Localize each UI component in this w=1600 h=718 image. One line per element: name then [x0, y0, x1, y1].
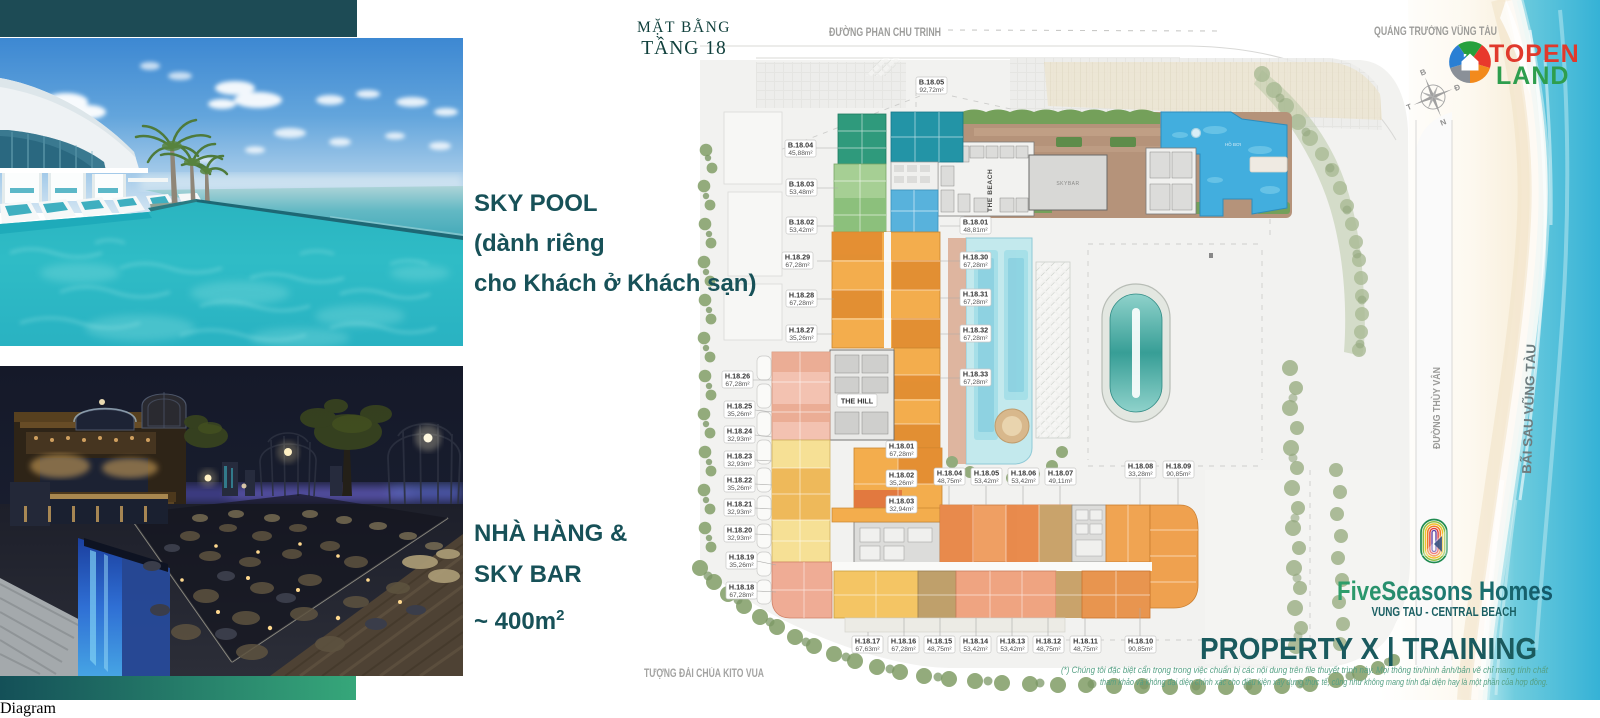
- svg-text:48,75m²: 48,75m²: [1073, 646, 1098, 653]
- svg-text:48,75m²: 48,75m²: [927, 646, 952, 653]
- svg-text:67,28m²: 67,28m²: [963, 299, 988, 306]
- svg-text:H.18.30: H.18.30: [963, 253, 988, 262]
- svg-text:B.18.03: B.18.03: [789, 180, 814, 189]
- svg-text:90,85m²: 90,85m²: [1166, 471, 1191, 478]
- svg-text:SKYBAR: SKYBAR: [1056, 181, 1079, 187]
- svg-text:53,48m²: 53,48m²: [789, 189, 814, 196]
- svg-text:67,63m²: 67,63m²: [855, 646, 880, 653]
- svg-text:45,88m²: 45,88m²: [788, 150, 813, 157]
- svg-text:H.18.19: H.18.19: [729, 553, 754, 562]
- svg-text:48,75m²: 48,75m²: [1036, 646, 1061, 653]
- svg-text:tham khảo và không đại diện ch: tham khảo và không đại diện chính xác ch…: [1100, 677, 1548, 687]
- svg-text:67,28m²: 67,28m²: [963, 379, 988, 386]
- svg-text:H.18.32: H.18.32: [963, 326, 988, 335]
- svg-text:H.18.17: H.18.17: [855, 637, 880, 646]
- svg-text:48,75m²: 48,75m²: [937, 478, 962, 485]
- svg-text:H.18.04: H.18.04: [937, 469, 962, 478]
- svg-text:QUẢNG TRƯỜNG VŨNG TÀU: QUẢNG TRƯỜNG VŨNG TÀU: [1374, 25, 1497, 38]
- svg-text:48,81m²: 48,81m²: [963, 227, 988, 234]
- svg-text:H.18.02: H.18.02: [889, 471, 914, 480]
- svg-text:H.18.28: H.18.28: [789, 291, 814, 300]
- svg-text:H.18.12: H.18.12: [1036, 637, 1061, 646]
- svg-text:LAND: LAND: [1496, 62, 1569, 90]
- svg-text:H.18.18: H.18.18: [729, 583, 754, 592]
- svg-text:H.18.11: H.18.11: [1073, 637, 1098, 646]
- svg-text:35,26m²: 35,26m²: [727, 411, 752, 418]
- svg-text:PROPERTY X | TRAINING: PROPERTY X | TRAINING: [1200, 631, 1537, 666]
- svg-text:H.18.25: H.18.25: [727, 402, 752, 411]
- svg-text:67,28m²: 67,28m²: [891, 646, 916, 653]
- svg-text:53,42m²: 53,42m²: [974, 478, 999, 485]
- svg-text:92,72m²: 92,72m²: [919, 87, 944, 94]
- svg-text:35,26m²: 35,26m²: [729, 562, 754, 569]
- svg-text:B.18.02: B.18.02: [789, 218, 814, 227]
- svg-text:H.18.05: H.18.05: [974, 469, 999, 478]
- svg-text:H.18.09: H.18.09: [1166, 462, 1191, 471]
- svg-text:90,85m²: 90,85m²: [1128, 646, 1153, 653]
- svg-text:H.18.03: H.18.03: [889, 497, 914, 506]
- svg-text:H.18.06: H.18.06: [1011, 469, 1036, 478]
- svg-text:67,28m²: 67,28m²: [963, 262, 988, 269]
- svg-text:ĐƯỜNG PHAN CHU TRINH: ĐƯỜNG PHAN CHU TRINH: [829, 24, 941, 39]
- svg-text:H.18.26: H.18.26: [725, 372, 750, 381]
- svg-text:B.18.01: B.18.01: [963, 218, 988, 227]
- svg-text:H.18.33: H.18.33: [963, 370, 988, 379]
- svg-text:ĐƯỜNG THÙY VÂN: ĐƯỜNG THÙY VÂN: [1430, 367, 1443, 449]
- svg-text:H.18.23: H.18.23: [727, 452, 752, 461]
- svg-text:53,42m²: 53,42m²: [963, 646, 988, 653]
- svg-text:H.18.13: H.18.13: [1000, 637, 1025, 646]
- svg-text:(*) Chúng tôi đặc biệt cẩn trọ: (*) Chúng tôi đặc biệt cẩn trọng trong v…: [1061, 665, 1548, 675]
- svg-text:THE BEACH: THE BEACH: [987, 169, 994, 212]
- svg-text:67,28m²: 67,28m²: [889, 451, 914, 458]
- svg-text:THE HILL: THE HILL: [841, 397, 874, 406]
- svg-text:H.18.31: H.18.31: [963, 290, 988, 299]
- svg-text:53,42m²: 53,42m²: [1011, 478, 1036, 485]
- svg-text:67,28m²: 67,28m²: [789, 300, 814, 307]
- svg-text:B.18.05: B.18.05: [919, 78, 944, 87]
- svg-text:H.18.16: H.18.16: [891, 637, 916, 646]
- svg-text:53,42m²: 53,42m²: [789, 227, 814, 234]
- svg-text:32,93m²: 32,93m²: [727, 509, 752, 516]
- svg-text:32,93m²: 32,93m²: [727, 461, 752, 468]
- svg-text:B.18.04: B.18.04: [788, 141, 813, 150]
- svg-text:67,28m²: 67,28m²: [785, 262, 810, 269]
- svg-text:67,28m²: 67,28m²: [963, 335, 988, 342]
- svg-text:H.18.24: H.18.24: [727, 427, 752, 436]
- svg-text:32,94m²: 32,94m²: [889, 506, 914, 513]
- svg-text:32,93m²: 32,93m²: [727, 436, 752, 443]
- svg-text:35,26m²: 35,26m²: [727, 485, 752, 492]
- svg-text:35,26m²: 35,26m²: [889, 480, 914, 487]
- svg-text:32,93m²: 32,93m²: [727, 535, 752, 542]
- svg-text:H.18.27: H.18.27: [789, 326, 814, 335]
- svg-text:49,11m²: 49,11m²: [1049, 478, 1074, 485]
- svg-text:67,28m²: 67,28m²: [725, 381, 750, 388]
- svg-text:53,42m²: 53,42m²: [1000, 646, 1025, 653]
- svg-text:VUNG TAU - CENTRAL BEACH: VUNG TAU - CENTRAL BEACH: [1372, 605, 1517, 619]
- svg-text:H.18.07: H.18.07: [1048, 469, 1073, 478]
- svg-text:H.18.20: H.18.20: [727, 526, 752, 535]
- svg-text:TƯỢNG ĐÀI CHÚA KITO VUA: TƯỢNG ĐÀI CHÚA KITO VUA: [644, 667, 764, 680]
- svg-text:H.18.14: H.18.14: [963, 637, 988, 646]
- svg-text:H.18.21: H.18.21: [727, 500, 752, 509]
- svg-text:H.18.29: H.18.29: [785, 253, 810, 262]
- svg-text:H.18.08: H.18.08: [1128, 462, 1153, 471]
- svg-text:H.18.01: H.18.01: [889, 442, 914, 451]
- svg-text:33,28m²: 33,28m²: [1128, 471, 1153, 478]
- svg-text:H.18.22: H.18.22: [727, 476, 752, 485]
- svg-text:HỒ BƠI: HỒ BƠI: [1225, 141, 1241, 147]
- svg-text:35,26m²: 35,26m²: [789, 335, 814, 342]
- svg-text:H.18.10: H.18.10: [1128, 637, 1153, 646]
- svg-text:67,28m²: 67,28m²: [729, 592, 754, 599]
- svg-text:FiveSeasons Homes: FiveSeasons Homes: [1337, 576, 1553, 606]
- svg-text:H.18.15: H.18.15: [927, 637, 952, 646]
